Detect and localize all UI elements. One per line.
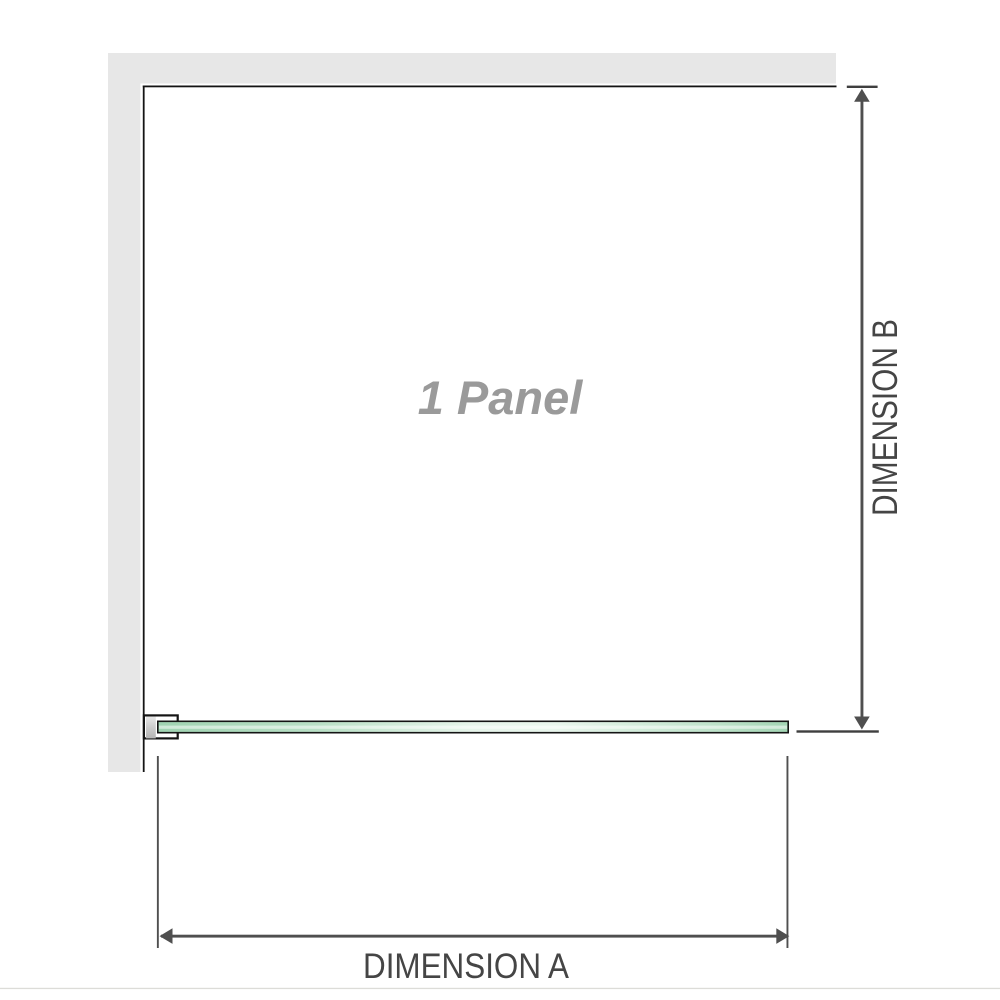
svg-text:DIMENSION B: DIMENSION B (866, 319, 905, 516)
svg-text:1 Panel: 1 Panel (418, 371, 584, 424)
svg-text:DIMENSION A: DIMENSION A (363, 947, 570, 986)
